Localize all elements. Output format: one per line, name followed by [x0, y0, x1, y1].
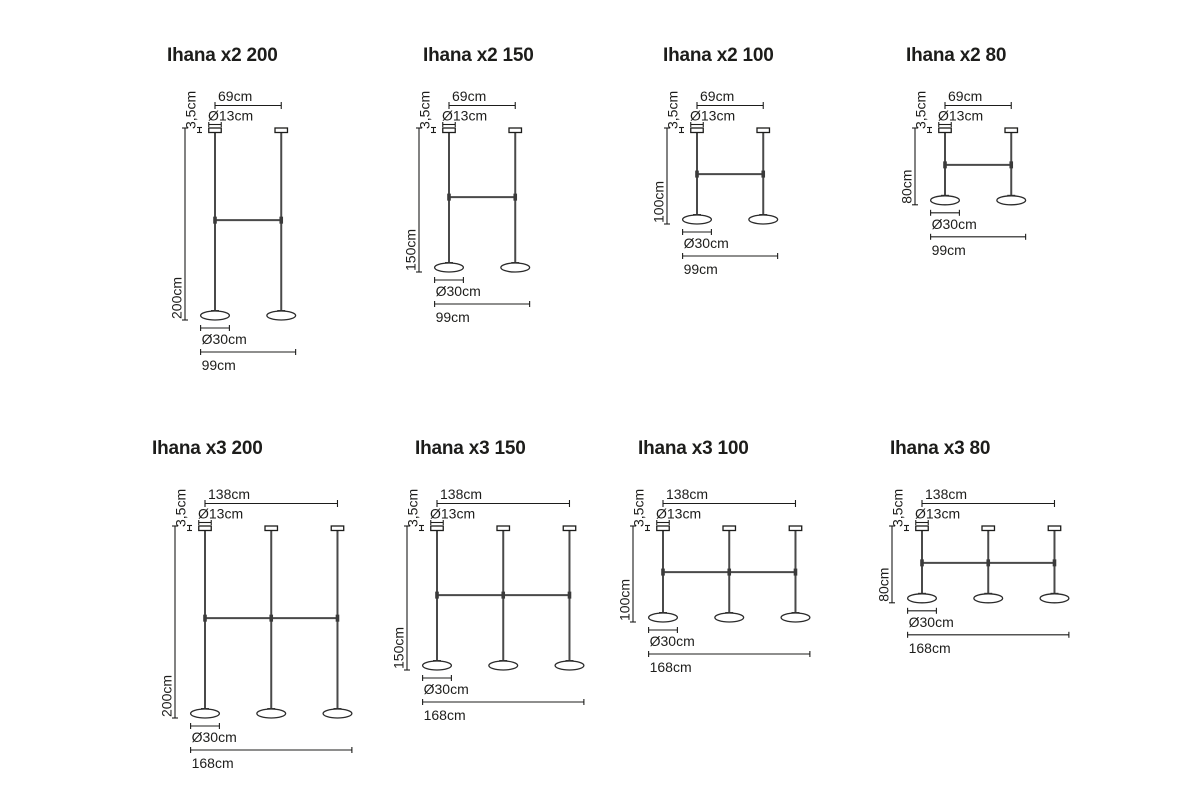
dim-label-drop-height: 80cm — [899, 170, 915, 204]
ceiling-canopy — [939, 128, 951, 133]
diagram-ihana-x2-100: 69cmØ13cm3,5cm100cmØ30cm99cm — [651, 88, 778, 277]
dim-label-shade-diameter: Ø30cm — [909, 614, 954, 630]
dim-label-canopy-height: 3,5cm — [405, 489, 421, 527]
disc-shade — [191, 709, 220, 718]
diagram-title: Ihana x2 150 — [423, 45, 534, 67]
dim-label-overall-width: 168cm — [650, 659, 692, 675]
crossbar-joint — [943, 161, 947, 168]
crossbar-joint — [447, 194, 451, 201]
crossbar-joint — [794, 569, 798, 576]
ceiling-canopy — [497, 526, 509, 531]
diagram-title: Ihana x3 100 — [638, 438, 749, 460]
ceiling-canopy — [757, 128, 769, 133]
dim-label-canopy-height: 3,5cm — [665, 91, 681, 129]
disc-shade — [683, 215, 712, 224]
diagram-ihana-x3-200: 138cmØ13cm3,5cm200cmØ30cm168cm — [159, 486, 352, 771]
disc-shade — [267, 311, 296, 320]
ceiling-canopy — [916, 526, 928, 531]
disc-shade — [649, 613, 678, 622]
ceiling-canopy — [723, 526, 735, 531]
diagram-ihana-x3-150: 138cmØ13cm3,5cm150cmØ30cm168cm — [391, 486, 584, 723]
dim-label-overall-width: 99cm — [436, 309, 470, 325]
disc-shade — [749, 215, 778, 224]
diagram-title: Ihana x3 80 — [890, 438, 990, 460]
disc-shade — [435, 263, 464, 272]
crossbar-joint — [986, 559, 990, 566]
disc-shade — [323, 709, 352, 718]
dim-label-canopy-height: 3,5cm — [913, 91, 929, 129]
diagram-ihana-x3-100: 138cmØ13cm3,5cm100cmØ30cm168cm — [617, 486, 810, 675]
dim-label-drop-height: 200cm — [159, 675, 175, 717]
dim-label-drop-height: 100cm — [617, 579, 633, 621]
dim-label-top-width: 138cm — [440, 486, 482, 502]
ceiling-canopy — [275, 128, 287, 133]
dim-label-top-width: 138cm — [925, 486, 967, 502]
diagram-ihana-x3-80: 138cmØ13cm3,5cm80cmØ30cm168cm — [876, 486, 1069, 656]
diagram-ihana-x2-200: 69cmØ13cm3,5cm200cmØ30cm99cm — [169, 88, 296, 373]
dim-label-canopy-diameter: Ø13cm — [938, 108, 983, 124]
dim-label-canopy-height: 3,5cm — [631, 489, 647, 527]
diagram-title: Ihana x2 80 — [906, 45, 1006, 67]
dim-label-canopy-height: 3,5cm — [173, 489, 189, 527]
ceiling-canopy — [331, 526, 343, 531]
crossbar-joint — [203, 615, 207, 622]
dim-label-drop-height: 100cm — [651, 181, 667, 223]
diagram-title: Ihana x3 200 — [152, 438, 263, 460]
ceiling-canopy — [199, 526, 211, 531]
dim-label-canopy-height: 3,5cm — [890, 489, 906, 527]
dim-label-shade-diameter: Ø30cm — [202, 331, 247, 347]
ceiling-canopy — [265, 526, 277, 531]
dim-label-canopy-diameter: Ø13cm — [442, 108, 487, 124]
dim-label-shade-diameter: Ø30cm — [436, 283, 481, 299]
disc-shade — [974, 594, 1003, 603]
dim-label-shade-diameter: Ø30cm — [192, 729, 237, 745]
disc-shade — [501, 263, 530, 272]
disc-shade — [489, 661, 518, 670]
spec-sheet: Ihana x2 200Ihana x2 150Ihana x2 100Ihan… — [0, 0, 1200, 800]
disc-shade — [1040, 594, 1069, 603]
crossbar-joint — [435, 592, 439, 599]
dim-label-top-width: 69cm — [948, 88, 982, 104]
diagram-title: Ihana x2 100 — [663, 45, 774, 67]
crossbar-joint — [695, 171, 699, 178]
disc-shade — [908, 594, 937, 603]
ceiling-canopy — [563, 526, 575, 531]
dim-label-drop-height: 200cm — [169, 277, 185, 319]
dim-label-shade-diameter: Ø30cm — [684, 235, 729, 251]
ceiling-canopy — [509, 128, 521, 133]
dim-label-shade-diameter: Ø30cm — [932, 216, 977, 232]
dim-label-overall-width: 168cm — [909, 640, 951, 656]
diagram-title: Ihana x2 200 — [167, 45, 278, 67]
dim-label-top-width: 69cm — [700, 88, 734, 104]
ceiling-canopy — [691, 128, 703, 133]
crossbar-joint — [727, 569, 731, 576]
dim-label-canopy-diameter: Ø13cm — [208, 108, 253, 124]
disc-shade — [781, 613, 810, 622]
ceiling-canopy — [443, 128, 455, 133]
dim-label-drop-height: 150cm — [403, 229, 419, 271]
dim-label-drop-height: 150cm — [391, 627, 407, 669]
diagram-canvas: 69cmØ13cm3,5cm200cmØ30cm99cm69cmØ13cm3,5… — [0, 0, 1200, 800]
disc-shade — [715, 613, 744, 622]
disc-shade — [555, 661, 584, 670]
dim-label-top-width: 69cm — [452, 88, 486, 104]
diagram-ihana-x2-150: 69cmØ13cm3,5cm150cmØ30cm99cm — [403, 88, 530, 325]
crossbar-joint — [1009, 161, 1013, 168]
crossbar-joint — [279, 217, 283, 224]
ceiling-canopy — [1048, 526, 1060, 531]
crossbar-joint — [336, 615, 340, 622]
crossbar-joint — [501, 592, 505, 599]
dim-label-canopy-diameter: Ø13cm — [656, 506, 701, 522]
crossbar-joint — [920, 559, 924, 566]
dim-label-canopy-diameter: Ø13cm — [690, 108, 735, 124]
crossbar-joint — [661, 569, 665, 576]
disc-shade — [997, 196, 1026, 205]
dim-label-drop-height: 80cm — [876, 568, 892, 602]
disc-shade — [931, 196, 960, 205]
dim-label-overall-width: 168cm — [192, 755, 234, 771]
crossbar-joint — [568, 592, 572, 599]
dim-label-shade-diameter: Ø30cm — [650, 633, 695, 649]
ceiling-canopy — [657, 526, 669, 531]
dim-label-canopy-height: 3,5cm — [417, 91, 433, 129]
dim-label-overall-width: 99cm — [202, 357, 236, 373]
ceiling-canopy — [1005, 128, 1017, 133]
disc-shade — [423, 661, 452, 670]
dim-label-canopy-diameter: Ø13cm — [430, 506, 475, 522]
dim-label-shade-diameter: Ø30cm — [424, 681, 469, 697]
diagram-title: Ihana x3 150 — [415, 438, 526, 460]
diagram-ihana-x2-80: 69cmØ13cm3,5cm80cmØ30cm99cm — [899, 88, 1026, 258]
crossbar-joint — [1053, 559, 1057, 566]
dim-label-overall-width: 99cm — [932, 242, 966, 258]
dim-label-top-width: 69cm — [218, 88, 252, 104]
ceiling-canopy — [209, 128, 221, 133]
ceiling-canopy — [431, 526, 443, 531]
dim-label-canopy-height: 3,5cm — [183, 91, 199, 129]
crossbar-joint — [269, 615, 273, 622]
dim-label-overall-width: 99cm — [684, 261, 718, 277]
dim-label-canopy-diameter: Ø13cm — [198, 506, 243, 522]
crossbar-joint — [761, 171, 765, 178]
disc-shade — [201, 311, 230, 320]
crossbar-joint — [513, 194, 517, 201]
crossbar-joint — [213, 217, 217, 224]
dim-label-overall-width: 168cm — [424, 707, 466, 723]
dim-label-top-width: 138cm — [666, 486, 708, 502]
disc-shade — [257, 709, 286, 718]
ceiling-canopy — [789, 526, 801, 531]
dim-label-top-width: 138cm — [208, 486, 250, 502]
ceiling-canopy — [982, 526, 994, 531]
dim-label-canopy-diameter: Ø13cm — [915, 506, 960, 522]
